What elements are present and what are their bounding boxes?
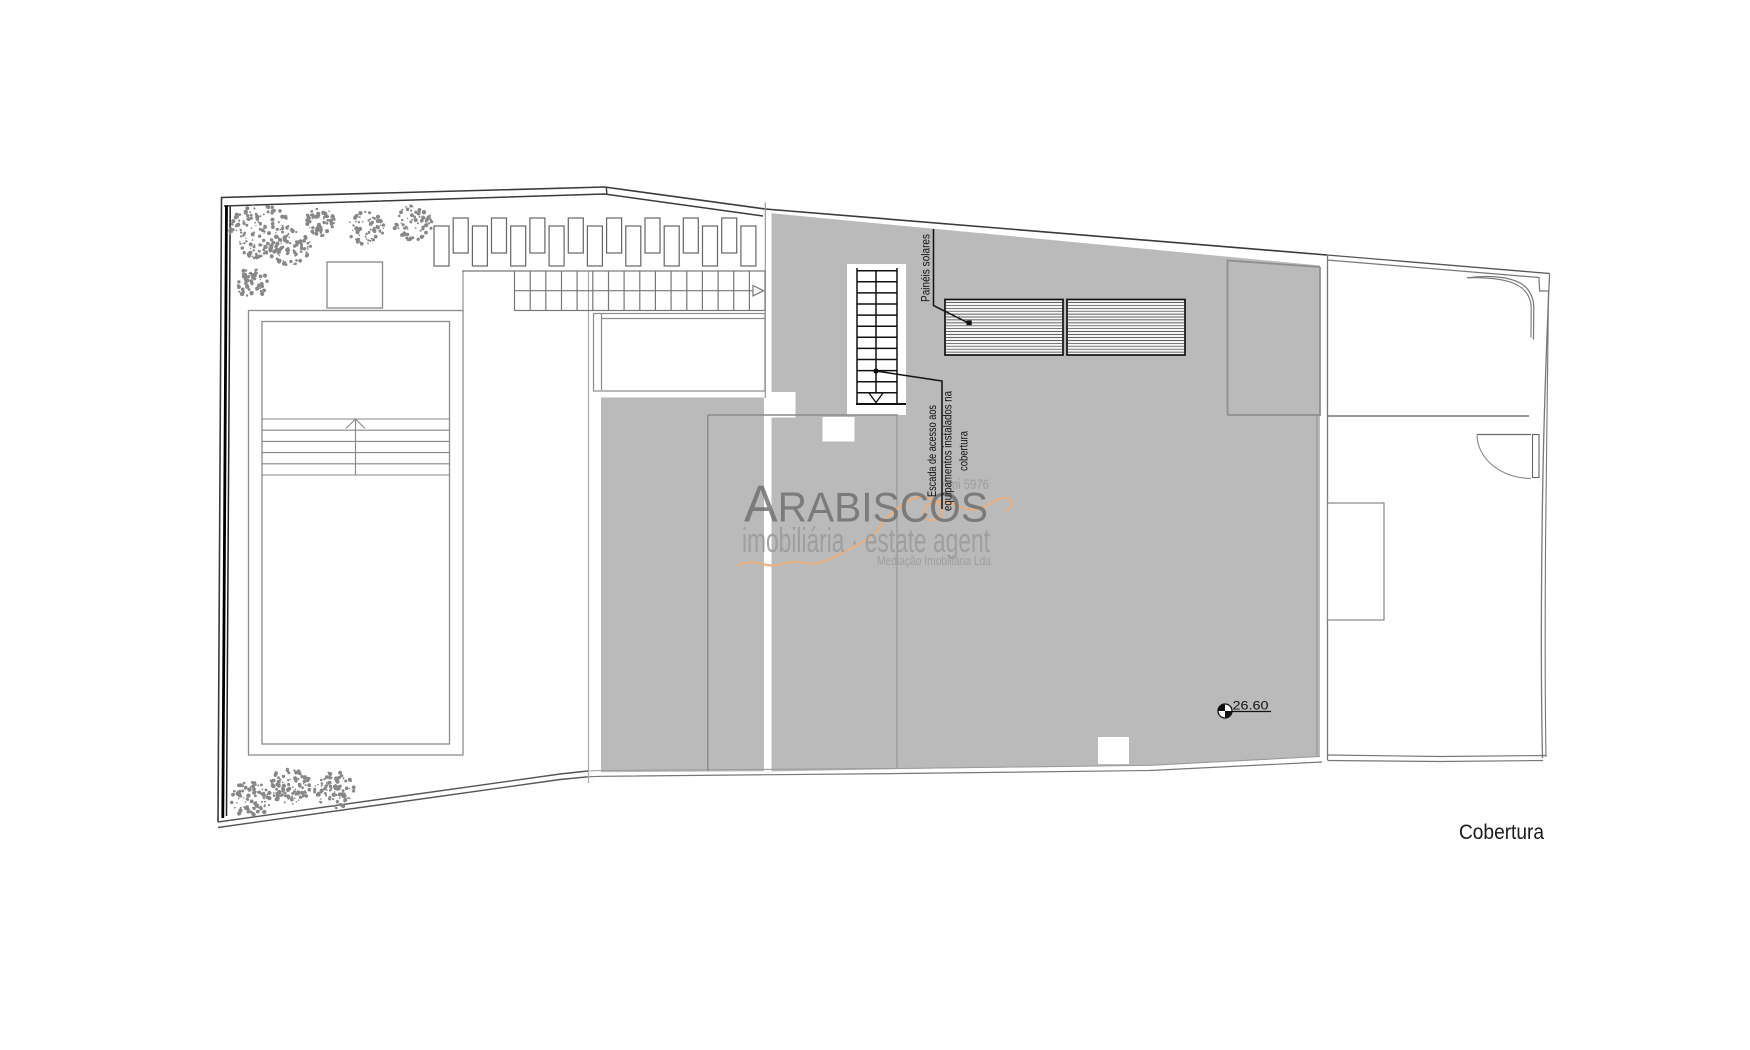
- svg-text:equipamentos instalados na: equipamentos instalados na: [941, 391, 955, 511]
- svg-text:Escada de acesso aos: Escada de acesso aos: [925, 405, 939, 497]
- svg-text:cobertura: cobertura: [957, 431, 971, 471]
- svg-text:26.60: 26.60: [1233, 699, 1269, 713]
- svg-text:Mediação Imobiliária Lda: Mediação Imobiliária Lda: [877, 554, 991, 568]
- svg-text:Cobertura: Cobertura: [1459, 821, 1544, 844]
- svg-text:Painéis solares: Painéis solares: [919, 234, 933, 302]
